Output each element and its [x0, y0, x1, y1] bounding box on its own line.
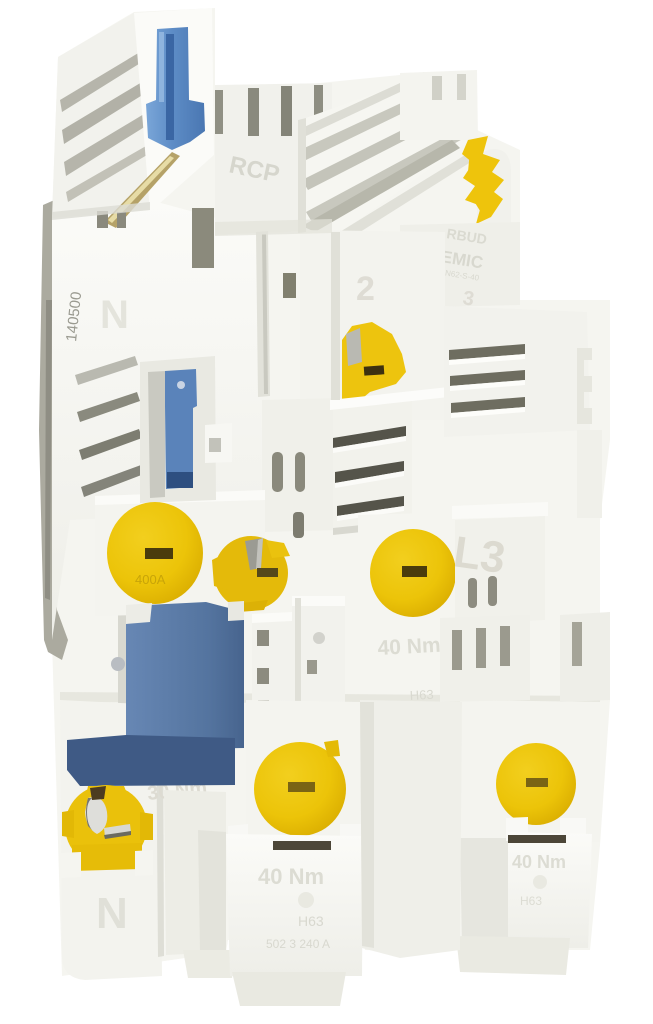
- svg-text:2: 2: [356, 270, 375, 308]
- svg-text:L3: L3: [451, 527, 509, 583]
- svg-text:H63: H63: [298, 913, 324, 929]
- svg-text:40 Nm: 40 Nm: [512, 852, 566, 872]
- svg-text:H63: H63: [520, 894, 542, 908]
- svg-text:502 3 240 A: 502 3 240 A: [266, 937, 330, 951]
- svg-text:N: N: [100, 293, 129, 337]
- svg-text:40 Nm: 40 Nm: [258, 864, 324, 889]
- svg-text:H63: H63: [409, 687, 434, 703]
- svg-text:400A: 400A: [135, 572, 166, 587]
- svg-text:N: N: [96, 889, 128, 938]
- svg-text:40 Nm: 40 Nm: [377, 634, 441, 660]
